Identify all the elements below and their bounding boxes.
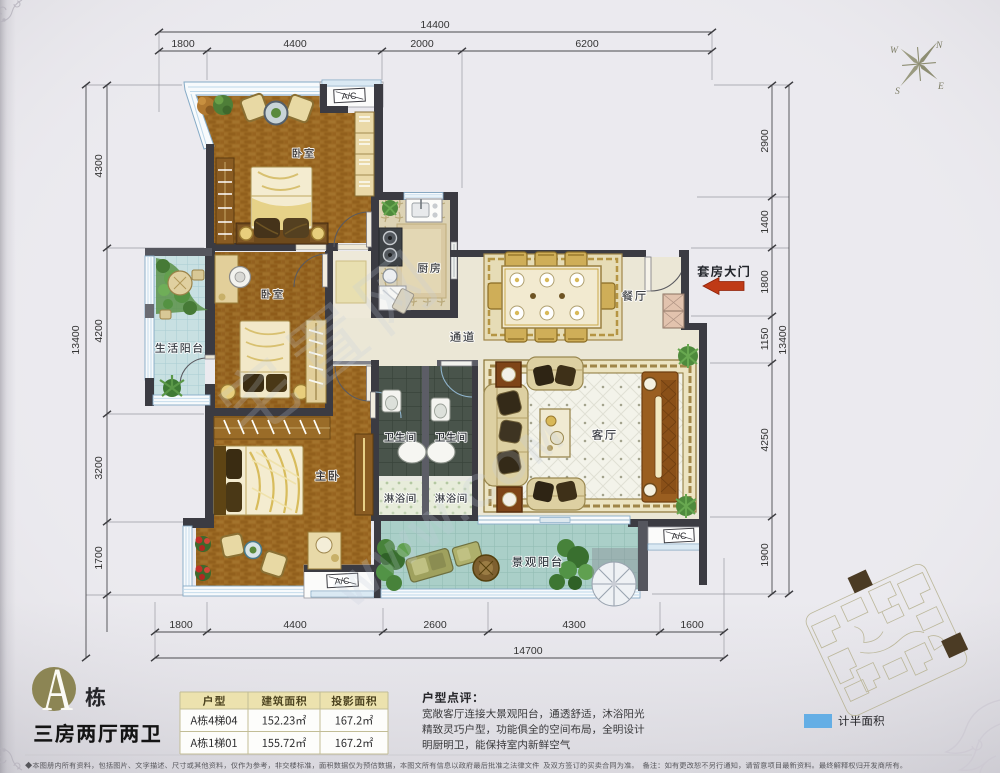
svg-text:4300: 4300: [562, 619, 586, 631]
svg-text:S: S: [895, 87, 900, 97]
svg-text:2600: 2600: [423, 619, 447, 631]
svg-text:2000: 2000: [410, 38, 434, 50]
svg-text:1800: 1800: [169, 619, 193, 631]
svg-text:4400: 4400: [283, 619, 307, 631]
svg-text:14400: 14400: [420, 19, 449, 31]
svg-text:1800: 1800: [759, 270, 771, 294]
svg-text:2900: 2900: [759, 129, 771, 153]
svg-text:A: A: [42, 657, 73, 724]
svg-text:A/C: A/C: [671, 531, 687, 542]
svg-text:4300: 4300: [93, 154, 105, 178]
svg-text:W: W: [890, 46, 899, 56]
svg-text:E: E: [937, 82, 944, 92]
svg-text:14700: 14700: [513, 645, 542, 657]
svg-text:1800: 1800: [171, 38, 195, 50]
svg-text:1600: 1600: [680, 619, 704, 631]
svg-text:3200: 3200: [93, 456, 105, 480]
svg-text:1700: 1700: [93, 546, 105, 570]
svg-text:13400: 13400: [777, 325, 789, 354]
svg-text:4200: 4200: [93, 319, 105, 343]
svg-text:6200: 6200: [575, 38, 599, 50]
svg-text:N: N: [935, 41, 943, 51]
svg-text:13400: 13400: [70, 325, 82, 354]
svg-text:A/C: A/C: [341, 91, 357, 102]
svg-text:4400: 4400: [283, 38, 307, 50]
svg-text:1400: 1400: [759, 210, 771, 234]
svg-text:1150: 1150: [759, 328, 771, 351]
svg-text:4250: 4250: [759, 428, 771, 452]
svg-text:1900: 1900: [759, 543, 771, 567]
